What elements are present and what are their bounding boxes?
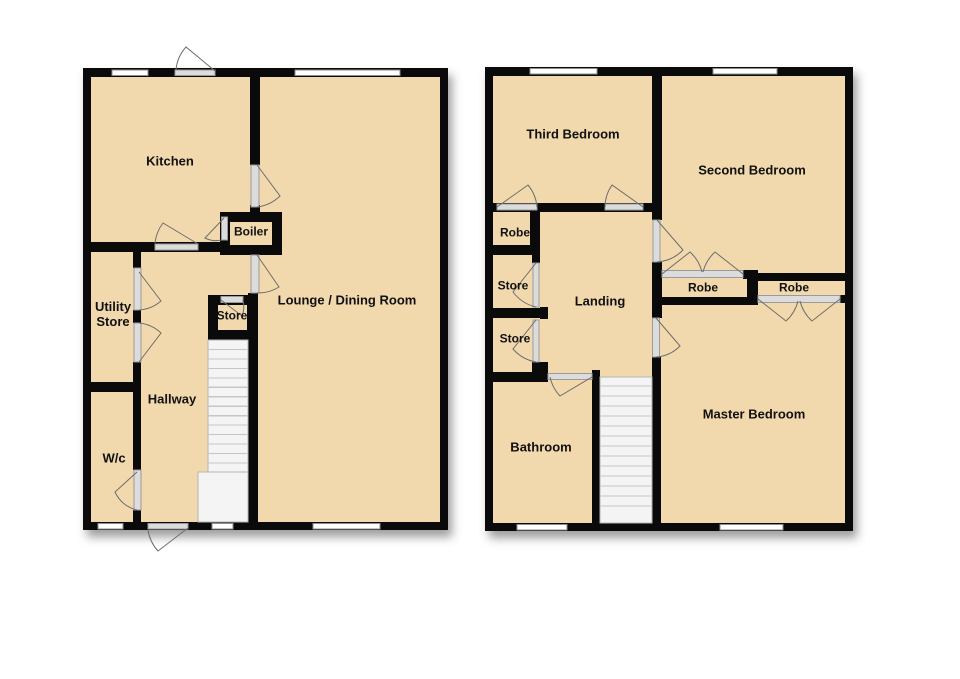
kitchen-lounge-door [251,165,259,207]
store-door [221,297,243,303]
floor-plan-drawing [0,0,960,679]
bathroom-stairs-wall [592,370,600,523]
utility-door-upper [134,268,141,310]
store-lower-door [533,320,539,362]
room-label-landing: Landing [575,294,626,309]
kitchen-hall-wall [83,242,223,252]
bathroom-window [517,525,567,531]
utility-wc-wall [83,382,141,392]
bathroom-top-wall [485,372,548,382]
second-bedroom-door [653,220,660,262]
master-bedroom-door [653,318,660,357]
room-label-store-upper: Store [498,279,529,294]
wc-window [98,524,123,530]
hall-lounge-door [251,255,259,293]
stairs-master-wall [652,357,661,523]
bathroom-door [548,374,592,380]
robe-mid-right-doors [758,296,840,303]
room-label-bathroom: Bathroom [510,440,571,455]
room-label-wc: W/c [102,451,125,466]
utility-door-lower [134,323,141,362]
room-label-kitchen: Kitchen [146,154,194,169]
wc-door [134,470,141,510]
second-third-bedroom-wall [652,76,662,220]
lounge-rear-window [313,524,380,530]
robe-master-wall [652,297,755,305]
room-label-robe-top: Robe [500,226,530,241]
store-store-wall [485,308,548,318]
kitchen-door [155,244,198,250]
floorplan-canvas: KitchenBoilerUtility StoreStoreHallwayW/… [0,0,960,679]
boiler-door [222,217,228,240]
room-label-robe-mid-left: Robe [688,281,718,296]
room-label-third-bedroom: Third Bedroom [526,127,619,142]
room-label-master-bedroom: Master Bedroom [703,407,806,422]
first-staircase [600,377,652,523]
second-bedroom-window [713,69,777,75]
third-bedroom-door [605,204,643,210]
robe-mid-left-doors [662,271,743,278]
lounge-front-window [295,70,400,76]
room-label-store-lower: Store [500,332,531,347]
robe-store-wall [485,245,540,255]
third-bedroom-window [530,69,597,75]
room-label-second-bedroom: Second Bedroom [698,163,806,178]
room-label-store: Store [217,309,248,324]
kitchen-lounge-wall [250,77,260,165]
room-label-lounge-dining-room: Lounge / Dining Room [278,293,417,308]
room-label-utility-store: Utility Store [95,299,131,329]
stairs-window [212,524,233,530]
rear-door [148,524,188,530]
front-door [175,70,215,76]
store-upper-door [533,263,539,307]
room-label-hallway: Hallway [148,392,196,407]
kitchen-window [112,70,148,76]
room-label-robe-mid-right: Robe [779,281,809,296]
room-label-boiler: Boiler [234,225,268,240]
master-bedroom-window [720,525,783,531]
robe-top-door [497,204,537,210]
